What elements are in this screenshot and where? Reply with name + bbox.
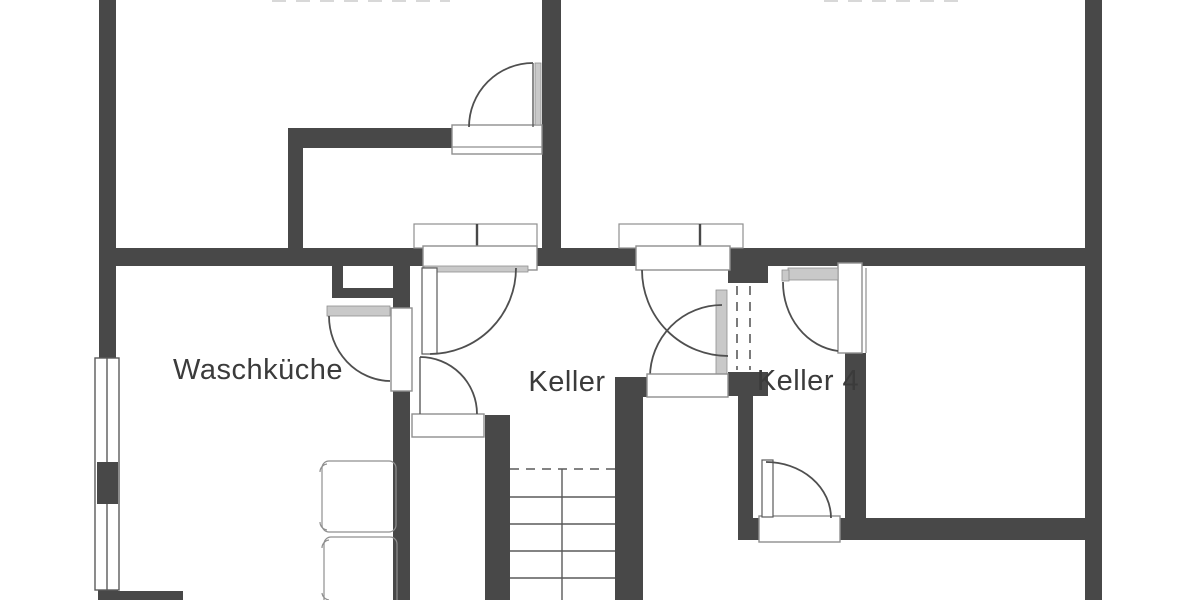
stairs (510, 469, 615, 600)
wall-main-horizontal-a (108, 248, 423, 266)
room-label-waschkueche: Waschküche (173, 354, 343, 386)
room-label-keller: Keller (528, 366, 605, 398)
wall-stair-left (485, 415, 510, 600)
door-keller4-top (782, 263, 866, 353)
appliance-2 (324, 537, 397, 600)
door-leaf (327, 306, 390, 316)
door-main-middle (619, 224, 743, 377)
door-corridor-south (647, 374, 728, 397)
wall-small-room-horizontal (288, 128, 452, 148)
wall-main-horizontal-c (728, 248, 1085, 266)
door-leaf-shadow (535, 63, 541, 125)
door-stairs (412, 357, 484, 437)
door-threshold-accent (424, 266, 528, 272)
wall-keller4-left (738, 372, 753, 523)
door-casing (391, 308, 412, 391)
wall-shaft-bottom (332, 288, 393, 298)
appliance-1-hinge-bottom (320, 522, 327, 530)
appliance-1-hinge-top (320, 464, 327, 472)
door-arc (420, 357, 477, 414)
door-leaf (762, 460, 773, 517)
wall-bottom-edge-stub (107, 591, 183, 600)
door-arc (766, 462, 831, 518)
door-keller4-bottom (759, 460, 840, 542)
appliance-2-hinge-bottom (322, 593, 329, 600)
appliance-1 (322, 461, 396, 532)
wall-stair-right (615, 377, 643, 600)
door-frame-top (619, 224, 743, 248)
floor-plan-svg: Waschküche Keller Keller 4 (0, 0, 1200, 600)
wall-exterior-right (1085, 0, 1102, 600)
door-arc-lower (650, 305, 722, 377)
fixtures-waschkueche (320, 461, 397, 600)
door-sill (452, 125, 542, 154)
door-sill (647, 374, 728, 397)
wall-top-divider (542, 0, 561, 248)
door-sill (636, 246, 730, 270)
wall-stair-right-head (615, 377, 647, 397)
door-main-left (414, 224, 537, 354)
walls (97, 0, 1102, 600)
door-casing (838, 263, 862, 353)
room-label-keller4: Keller 4 (757, 365, 859, 397)
door-sill (759, 516, 840, 542)
door-leaf-lower (716, 290, 727, 377)
door-leaf (422, 268, 437, 354)
wall-waschkueche-right-top (393, 248, 410, 308)
wall-corner-block (728, 248, 768, 283)
door-leaf-cap (782, 270, 789, 281)
door-arc (783, 282, 838, 351)
wall-main-horizontal-b (535, 248, 638, 266)
window-pier (97, 462, 118, 504)
door-arc (430, 268, 516, 354)
floor-plan-canvas: Waschküche Keller Keller 4 (0, 0, 1200, 600)
wall-bottom-right-room (838, 518, 1085, 540)
door-arc-upper (642, 270, 728, 356)
opening-dashed (737, 286, 750, 370)
door-sill (412, 414, 484, 437)
appliance-2-hinge-top (322, 540, 329, 548)
door-frame-top (414, 224, 537, 248)
wall-exterior-left (99, 0, 116, 359)
door-arc (469, 63, 533, 127)
door-leaf (788, 268, 838, 280)
window-left (95, 358, 119, 590)
room-labels: Waschküche Keller Keller 4 (173, 354, 859, 398)
door-top-room (452, 63, 542, 154)
